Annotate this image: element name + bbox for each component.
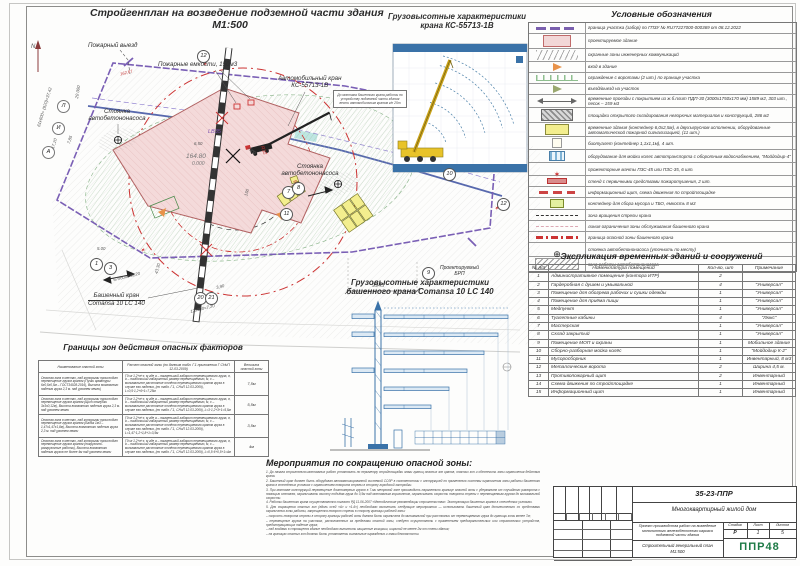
callout-bubble: 12 <box>497 198 510 211</box>
hazard-row: Опасная зона в местах, над которыми прои… <box>39 438 269 457</box>
explication-row: 5Медпункт 1"Универсал" <box>529 306 796 314</box>
callout-bubble: 11 <box>280 208 293 221</box>
legend-row-text: биотуалет (контейнер 1,1х1,1м), 4 шт. <box>586 140 676 147</box>
legend-row: зона вращения стрелы крана <box>529 210 796 221</box>
mark-lb: LB35 <box>208 129 221 135</box>
axis-bubble: Л <box>57 100 70 113</box>
legend-symbol-icon <box>554 164 561 174</box>
legend-row: оборудование для мойки колес автотранспо… <box>529 150 796 163</box>
legend-symbol-icon <box>536 50 578 60</box>
legend-row: временные проезды с покрытием из ж.б.пли… <box>529 95 796 108</box>
stamp-column-label <box>606 513 619 520</box>
stamp-column-label <box>554 513 567 520</box>
measures-item: 4. Работы башенного крана осуществляются… <box>266 500 540 504</box>
stamp-column-label <box>593 513 606 520</box>
truck-chart-title: Грузовысотные характеристикикрана КС-557… <box>378 13 536 31</box>
stamp-column-label <box>567 513 580 520</box>
stamp-role-label <box>554 551 632 561</box>
legend-row-text: проектируемое здание <box>586 37 639 44</box>
legend-symbol-icon <box>547 178 567 184</box>
explication-row: 12Металлические ворота 2Ширина 4,5 м. <box>529 364 796 372</box>
legend-row-text: оборудование для мойки колес автотранспо… <box>586 153 793 160</box>
legend-row: площадки открытого складирования негорюч… <box>529 108 796 123</box>
legend-row: вход в здание <box>529 62 796 73</box>
legend-symbol-icon <box>553 85 562 93</box>
legend-row-text: вход в здание <box>586 63 619 70</box>
explication-row: 9Помещение МОП и охраны 1Мобильное здани… <box>529 339 796 347</box>
stamp-role-label <box>554 530 632 540</box>
measures-list: 1. До начала строительно-монтажных работ… <box>266 470 540 537</box>
explication-title: Экспликация временных зданий и сооружени… <box>528 252 795 262</box>
stamp-doc-code: 35-23-ППР <box>632 489 796 498</box>
legend-row-text: площадки открытого складирования негорюч… <box>586 112 771 119</box>
stamp-project: Проект производства работ на возведением… <box>634 524 721 538</box>
measures-item: – скорость поворота стрелы в сторону гра… <box>266 514 540 518</box>
axis-bubble: А <box>42 146 55 159</box>
note-box: До монтажа башенного крана работы по уст… <box>333 90 407 108</box>
legend-row-text: зона вращения стрелы крана <box>586 212 653 219</box>
legend-row: временные здания (контейнер 6,0х2,5м), в… <box>529 123 796 137</box>
legend-symbol-icon <box>543 35 571 47</box>
stamp-stage-label: Стадия <box>723 523 747 527</box>
legend-row: граница участка (забор) по ГПЗУ № RU7722… <box>529 23 796 34</box>
drawing-sheet: ✶✶ ✶✶ N <box>0 0 800 566</box>
legend-symbol-icon <box>536 226 578 227</box>
explication-row: 1Административное помещение (контора ИТР… <box>529 273 796 281</box>
dim-6: 5.00 <box>97 246 105 251</box>
measures-item: 2. Башенный кран должен быть оборудован … <box>266 479 540 487</box>
legend-row-text: ограждение с воротами (2 шт.) по границе… <box>586 74 702 81</box>
legend-row-text: стенд с первичными средствами пожаротуше… <box>586 178 713 185</box>
legend-symbol-icon <box>545 124 569 135</box>
legend-row-text: контейнер для сбора мусора и ТБО, емкост… <box>586 200 698 207</box>
measures-title: Мероприятия по сокращению опасной зоны: <box>266 458 540 468</box>
legend-symbol-icon <box>552 138 562 148</box>
north-arrow: N <box>31 40 41 72</box>
legend-symbol-icon <box>536 27 578 30</box>
explication-row: 8Склад закрытый 1"Универсал" <box>529 331 796 339</box>
hazard-row: Опасная зона в местах, над которыми прои… <box>39 415 269 438</box>
hazard-header: Наименование опасной зоны Расчет опасной… <box>39 361 269 373</box>
stamp-column-label <box>619 513 632 520</box>
legend-row: биотуалет (контейнер 1,1х1,1м), 4 шт. <box>529 137 796 150</box>
label-fire-exit: Пожарный выезд <box>88 43 137 50</box>
mark-zero: 0.000 <box>192 162 205 168</box>
label-auto-crane: Автомобильный кранКС-55713-1В <box>278 76 342 90</box>
callout-bubble: 12 <box>197 50 210 63</box>
legend-symbol-icon <box>553 63 562 71</box>
label-fire-tanks: Пожарные емкости, 150м3 <box>158 62 237 69</box>
label-brp: ПроектируемыйБРП <box>440 266 479 277</box>
measures-item: – над входами в строящееся здание необхо… <box>266 527 540 531</box>
company-logo: ППР48 <box>723 538 796 557</box>
callout-bubble: 1 <box>90 258 103 271</box>
stamp-sheets-label: Листов <box>769 523 796 527</box>
legend-row: линия ограничения зоны обслуживания баше… <box>529 221 796 232</box>
legend-row-text: линия ограничения зоны обслуживания баше… <box>586 223 711 230</box>
legend-symbol-icon <box>536 236 578 239</box>
truck-crane-chart <box>393 44 527 172</box>
legend-row: граница опасной зоны башенного крана <box>529 232 796 243</box>
hazard-table-title: Границы зон действия опасных факторов <box>38 343 268 352</box>
legend-row: стенд с первичными средствами пожаротуше… <box>529 176 796 187</box>
explication-row: 15Информационный щит 1Инвентарный <box>529 389 796 397</box>
explication-row: 14Схема движения по стройплощадке 1Инвен… <box>529 380 796 388</box>
label-pump-parking-1: Стоянкаавтобетононасоса <box>84 109 150 123</box>
legend-row: прожекторные мачты ПЗС-45 или ПЗС-35, 6 … <box>529 163 796 176</box>
hazard-table: Наименование опасной зоны Расчет опасной… <box>38 360 269 457</box>
plan-title: Стройгенплан на возведение подземной час… <box>90 8 370 32</box>
stamp-roles <box>554 520 632 561</box>
legend-row-text: временные здания (контейнер 6,0х2,5м), в… <box>586 124 796 136</box>
stamp-sheet-value: 1 <box>747 530 769 536</box>
axis-bubble: И <box>52 122 65 135</box>
callout-bubble: 10 <box>443 168 456 181</box>
legend-row: охранные зоны инженерных коммуникаций <box>529 49 796 62</box>
explication-table: № п/пНоменклатура помещений Кол-во, штПр… <box>528 264 796 397</box>
stamp-role-label <box>554 540 632 550</box>
measures-item: – на границах опасных зон должны быть ус… <box>266 532 540 536</box>
callout-bubble: 3 <box>104 262 117 275</box>
legend-symbol-icon <box>550 199 564 208</box>
hazard-row: Опасная зона в местах, над которыми прои… <box>39 373 269 396</box>
explication-row: 7Мастерская 1"Универсал" <box>529 322 796 330</box>
stamp-object: Многоквартирный жилой дом <box>632 507 796 513</box>
legend-row-text: граница участка (забор) по ГПЗУ № RU7722… <box>586 24 743 31</box>
stamp-column-label <box>580 513 593 520</box>
callout-bubble: 21 <box>205 292 218 305</box>
legend-row: информационный щит, схема движения по ст… <box>529 187 796 198</box>
legend-row-text: охранные зоны инженерных коммуникаций <box>586 51 681 58</box>
stamp-stage-value: Р <box>723 530 747 536</box>
legend-row: въезд/выезд на участок <box>529 84 796 95</box>
legend-symbol-icon <box>549 151 565 161</box>
explication-header: № п/пНоменклатура помещений Кол-во, штПр… <box>529 265 796 273</box>
stamp-columns <box>554 513 632 520</box>
legend-row-text: граница опасной зоны башенного крана <box>586 234 675 241</box>
explication-row: 6Туалетные кабины 4"Люкс" <box>529 314 796 322</box>
hazard-row: Опасная зона в местах, над которыми прои… <box>39 396 269 415</box>
legend-symbol-icon <box>536 75 578 81</box>
legend-symbol-icon <box>541 101 573 102</box>
explication-row: 4Помещение для приёма пищи 1"Универсал" <box>529 298 796 306</box>
measures-item: 3. При монтаже конструкций перемещение д… <box>266 488 540 500</box>
legend-row: проектируемое здание <box>529 34 796 49</box>
legend-row: контейнер для сбора мусора и ТБО, емкост… <box>529 198 796 210</box>
dim-12: 6,50 <box>194 141 202 146</box>
stamp-role-label <box>554 520 632 530</box>
legend-row: ограждение с воротами (2 шт.) по границе… <box>529 73 796 84</box>
legend-row-text: временные проезды с покрытием из ж.б.пли… <box>586 95 796 107</box>
measures-item: 1. До начала строительно-монтажных работ… <box>266 470 540 478</box>
legend-symbol-icon <box>539 191 575 194</box>
legend-row-text: прожекторные мачты ПЗС-45 или ПЗС-35, 6 … <box>586 166 696 173</box>
label-pump-parking-2: Стоянкаавтобетононасоса <box>278 164 342 178</box>
explication-row: 10Сборно-разборная мойка колёс 1"Мойдоды… <box>529 347 796 355</box>
legend-symbol-icon <box>536 215 578 216</box>
stamp-sheets-value: 5 <box>769 530 796 536</box>
measures-item: 5. Для сокращения опасных зон (вдоль осе… <box>266 505 540 513</box>
measures-item: – перемещение грузов на участках, распол… <box>266 519 540 527</box>
explication-row: 13Противопожарный щит 2Инвентарный <box>529 372 796 380</box>
explication-row: 2Гардеробная с душем и умывальной 4"Унив… <box>529 281 796 289</box>
legend-row-text: информационный щит, схема движения по ст… <box>586 189 717 196</box>
callout-bubble: 8 <box>292 182 305 195</box>
stamp-drawing-name: Строительный генеральный планМ1:500 <box>634 543 721 554</box>
legend-table: граница участка (забор) по ГПЗУ № RU7722… <box>528 22 797 272</box>
legend-title: Условные обозначения <box>528 10 795 20</box>
svg-text:N: N <box>31 44 36 50</box>
explication-row: 11Мусоросборник 1Инвентарный, 8 м3 <box>529 356 796 364</box>
tower-chart-title: Грузовысотные характеристикибашенного кр… <box>320 279 520 297</box>
title-block: 35-23-ППР Многоквартирный жилой дом Прое… <box>553 486 797 558</box>
legend-row-text: въезд/выезд на участок <box>586 85 641 92</box>
legend-symbol-icon <box>541 109 573 121</box>
label-tower-crane: Башенный кран Comansa 10 LC 140 <box>88 293 145 308</box>
mark-elevation: 164.80 <box>186 153 206 160</box>
explication-row: 3Помещение для обогрева рабочих и сушки … <box>529 289 796 297</box>
stamp-sheet-label: Лист <box>747 523 769 527</box>
